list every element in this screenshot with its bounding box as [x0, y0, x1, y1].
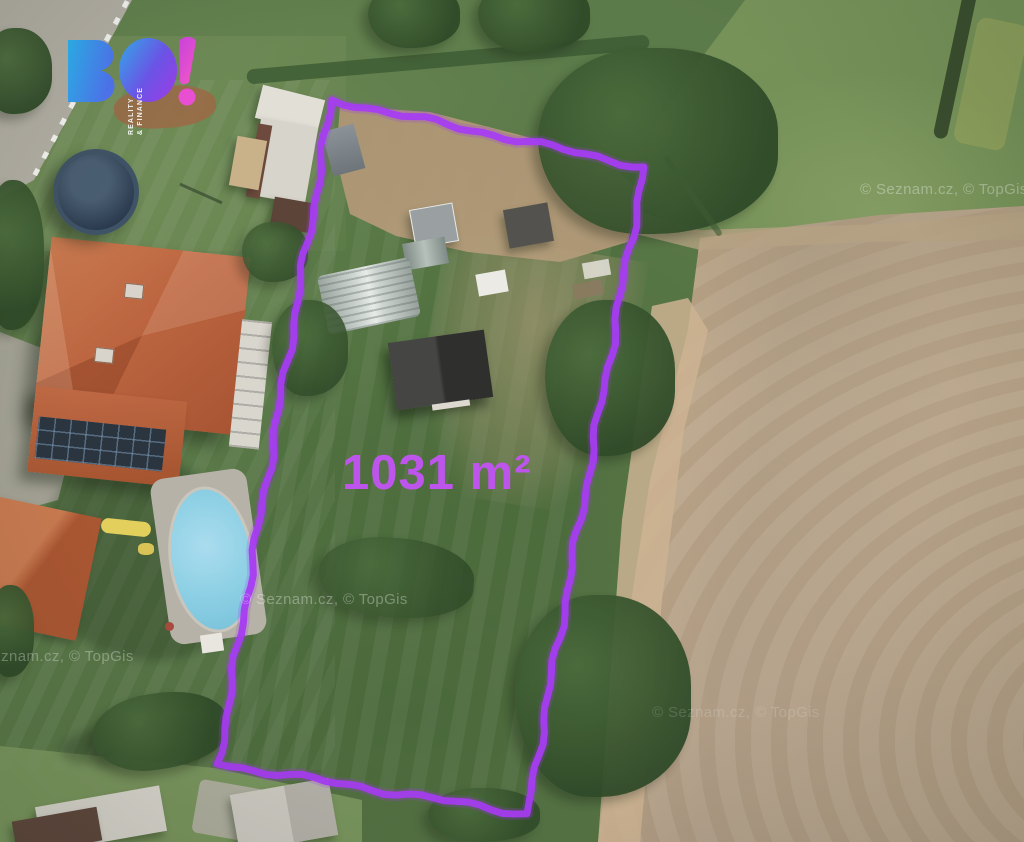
watermark-center: © Seznam.cz, © TopGis: [240, 591, 408, 608]
aerial-map: 1031 m² © Seznam.cz, © TopGis © Seznam.c…: [0, 0, 1024, 842]
logo-letter-b: [68, 40, 115, 102]
logo-exclamation-bar: [179, 37, 196, 84]
logo-exclamation-dot: [179, 89, 196, 106]
area-label: 1031 m²: [342, 445, 532, 501]
logo-tagline-line2: & FINANCE: [136, 75, 145, 135]
bo-logo: BO! REALITY & FINANCE: [56, 34, 208, 116]
watermark-field: © Seznam.cz, © TopGis: [652, 704, 820, 721]
watermark-top-right: © Seznam.cz, © TopGis: [860, 181, 1024, 198]
watermark-bottom-left: Seznam.cz, © TopGis: [0, 648, 134, 665]
logo-tagline: REALITY & FINANCE: [127, 75, 145, 135]
plot-boundary-svg: [0, 0, 1024, 842]
logo-tagline-line1: REALITY: [127, 75, 136, 135]
